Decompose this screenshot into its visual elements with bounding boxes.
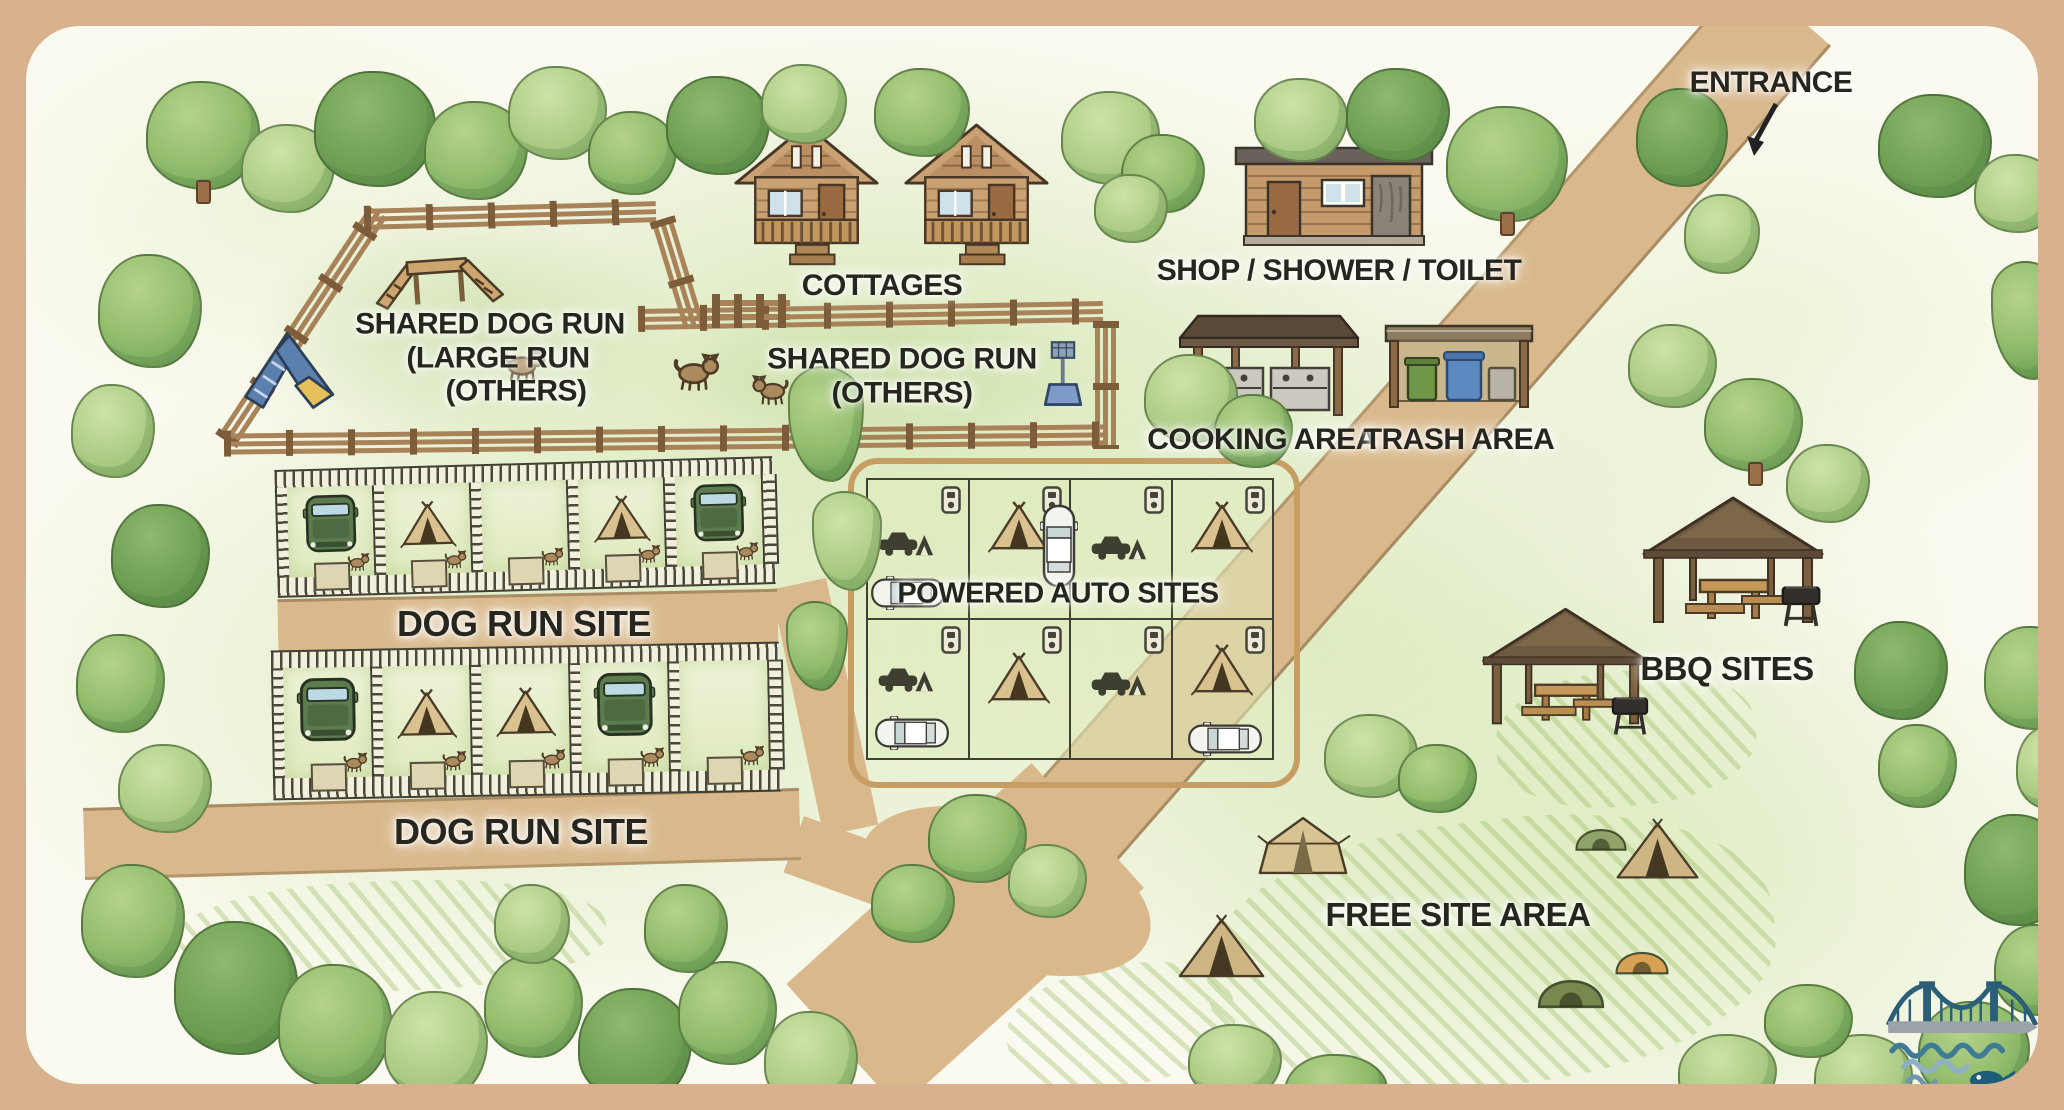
dog-run-pen (679, 660, 769, 772)
pen-gate (410, 559, 447, 588)
powered-site-cell (969, 619, 1071, 759)
dog-icon (347, 552, 372, 572)
tree-icon (1254, 78, 1348, 162)
dog-icon (442, 750, 468, 771)
pen-gate (409, 761, 445, 790)
tree-icon (1704, 378, 1803, 472)
dome-tent-icon (1574, 812, 1628, 853)
bridge-fish-logo (1884, 970, 2038, 1084)
tree-icon (2016, 726, 2038, 810)
dog-run-pen (283, 667, 372, 779)
trash-shelter-icon (1384, 316, 1534, 416)
dog-run-pen (384, 483, 471, 575)
tree-icon (1991, 261, 2038, 380)
tree-icon (588, 111, 677, 195)
dog-run-pen (481, 480, 568, 572)
pen-gate (310, 763, 346, 792)
fence (364, 198, 657, 232)
tree-icon (1786, 444, 1870, 523)
dog-run-pen (580, 662, 669, 774)
map-paper: ENTRANCE COTTAGES SHOP / SHOWER / TOILET… (26, 26, 2038, 1084)
dog-run-pen (287, 485, 374, 577)
car-tent-glyph-icon (1089, 668, 1147, 698)
shared-dog-run-large-label: SHARED DOG RUN (LARGE RUN (OTHERS) (355, 308, 625, 409)
dog-icon (343, 752, 369, 773)
dome-tent-icon (1536, 958, 1606, 1011)
entrance-arrow-icon (1728, 98, 1798, 163)
pen-gate (702, 551, 739, 580)
car-tent-glyph-icon (1089, 532, 1147, 562)
bbq-grill-icon (1608, 686, 1652, 738)
tree-icon (1974, 154, 2038, 233)
dog-icon (444, 550, 469, 570)
suv-icon (301, 492, 359, 556)
car-icon (1040, 504, 1078, 588)
power-outlet-icon (941, 486, 961, 514)
bush-icon (1678, 1034, 1777, 1084)
dog-icon (736, 541, 761, 561)
tree-icon (1636, 88, 1728, 187)
suv-icon (593, 670, 656, 739)
tent-icon (1191, 643, 1253, 697)
tree-icon (314, 71, 436, 187)
entrance-label: ENTRANCE (1690, 66, 1853, 100)
powered-site-cell (1172, 619, 1274, 759)
dog-walk-ramp-icon (369, 243, 508, 313)
tree-icon (1346, 68, 1450, 162)
pen-fence (761, 474, 780, 564)
tree-icon (1854, 621, 1948, 720)
free-site-area-label: FREE SITE AREA (1326, 896, 1591, 934)
bbq-sites-label: BBQ SITES (1640, 650, 1813, 688)
cooking-area-label: COOKING AREA (1147, 423, 1377, 457)
dog-run-gate (712, 294, 790, 328)
tree-icon (484, 954, 583, 1058)
tree-icon (1008, 844, 1087, 918)
dog-run-pen (481, 663, 570, 775)
tent-icon (1191, 500, 1253, 554)
tree-icon (71, 384, 155, 478)
tree-icon (678, 961, 777, 1065)
dog-icon (672, 352, 722, 392)
tree-icon (1984, 626, 2038, 730)
pen-gate (707, 756, 743, 785)
waste-scoop-station-icon (1044, 340, 1082, 409)
lodge-tent-icon (1254, 814, 1352, 879)
label-line: SHARED DOG RUN (355, 308, 625, 342)
tree-icon (1398, 744, 1477, 813)
pen-gate (607, 758, 643, 787)
shop-shower-toilet-label: SHOP / SHOWER / TOILET (1157, 254, 1522, 288)
pen-gate (604, 554, 641, 583)
bbq-grill-icon (1778, 574, 1824, 630)
dog-run-site-row-lower (271, 642, 782, 801)
tree-icon (1878, 724, 1957, 808)
tree-icon (111, 504, 210, 608)
tree-icon (874, 68, 970, 157)
cottages-label: COTTAGES (802, 269, 962, 303)
shared-dog-run-others-label: SHARED DOG RUN (OTHERS) (767, 342, 1037, 409)
dog-run-site-lower-label: DOG RUN SITE (394, 811, 648, 853)
tent-icon (1176, 914, 1268, 982)
bush-icon (1764, 984, 1853, 1058)
label-line: (OTHERS) (355, 375, 625, 409)
tree-icon (1684, 194, 1760, 274)
car-tent-glyph-icon (876, 528, 934, 558)
dog-icon (540, 748, 566, 769)
tree-icon (644, 884, 728, 973)
pen-fence (767, 660, 785, 770)
car-icon (1187, 722, 1263, 756)
tent-icon (396, 687, 457, 740)
tree-icon (666, 76, 770, 175)
tree-icon (1446, 106, 1568, 222)
tree-icon (578, 988, 692, 1084)
label-line: SHARED DOG RUN (767, 342, 1037, 376)
pen-gate (507, 556, 544, 585)
power-outlet-icon (941, 626, 961, 654)
pen-gate (313, 562, 350, 591)
tree-icon (118, 744, 212, 833)
powered-site-cell (867, 619, 969, 759)
dog-icon (541, 547, 566, 567)
pen-gate (508, 760, 544, 789)
dog-run-site-row-upper (274, 456, 775, 598)
power-outlet-icon (1042, 626, 1062, 654)
tent-icon (593, 494, 650, 545)
tree-icon (384, 991, 488, 1084)
trash-area-label: TRASH AREA (1364, 423, 1555, 457)
tree-icon (98, 254, 202, 368)
suv-icon (296, 675, 359, 744)
power-outlet-icon (1144, 486, 1164, 514)
tent-icon (495, 685, 556, 738)
tent-icon (988, 651, 1050, 705)
agility-a-frame-icon (239, 329, 335, 414)
car-tent-glyph-icon (876, 664, 934, 694)
power-outlet-icon (1144, 626, 1164, 654)
powered-sites-grid (866, 478, 1274, 760)
tree-icon (1628, 324, 1717, 408)
label-line: (OTHERS) (767, 376, 1037, 410)
dog-icon (639, 747, 665, 768)
dog-run-site-upper-label: DOG RUN SITE (397, 603, 651, 645)
dog-run-pen (675, 474, 763, 566)
powered-auto-sites-label: POWERED AUTO SITES (897, 578, 1218, 611)
label-line: (LARGE RUN (355, 341, 625, 375)
tree-icon (278, 964, 392, 1084)
tree-icon (871, 864, 955, 943)
dog-run-pen (382, 665, 471, 777)
suv-icon (690, 481, 748, 545)
tree-icon (76, 634, 165, 733)
tree-icon (81, 864, 185, 978)
powered-site-cell (1070, 619, 1172, 759)
tree-icon (494, 884, 570, 964)
tree-icon (1964, 814, 2038, 926)
dog-icon (638, 544, 663, 564)
dog-run-pen (578, 477, 665, 569)
tent-icon (399, 499, 456, 550)
tree-icon (1094, 174, 1168, 243)
tree-icon (761, 64, 847, 144)
dog-icon (739, 745, 765, 766)
campground-map: ENTRANCE COTTAGES SHOP / SHOWER / TOILET… (0, 0, 2064, 1110)
dome-tent-icon (1614, 934, 1670, 977)
car-icon (874, 716, 950, 750)
